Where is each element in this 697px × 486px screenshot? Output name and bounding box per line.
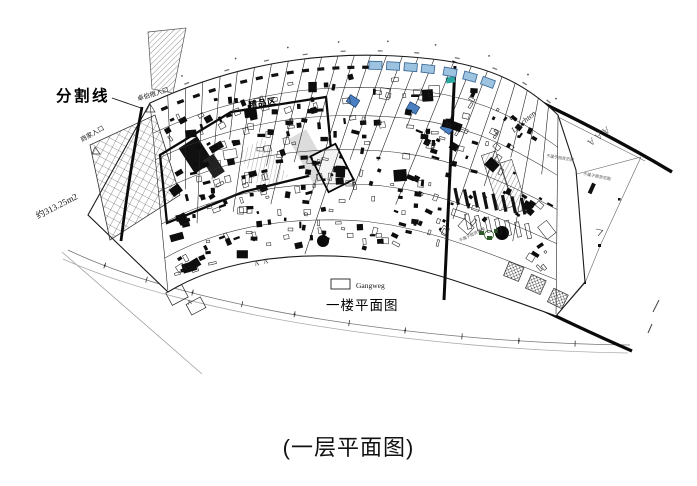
- section-mark: A: [254, 260, 261, 268]
- hatched-ramp: [148, 28, 186, 93]
- gangweg-swatch: [331, 279, 350, 289]
- survey-marks-label: AAA: [583, 124, 612, 149]
- window: [404, 63, 418, 72]
- legend: Gangweg 一楼平面图: [326, 279, 399, 313]
- window: [386, 62, 399, 71]
- annotation-right-mid: 不属于租赁范围: [583, 170, 612, 181]
- window: [421, 64, 435, 73]
- section-mark: A: [186, 298, 193, 306]
- gangweg-label: Gangweg: [356, 281, 385, 290]
- page-caption: (一层平面图): [0, 430, 697, 462]
- area-note-label: 约313.25m2: [34, 190, 79, 220]
- plan-title: 一楼平面图: [326, 298, 399, 313]
- boundary-dashes: [648, 300, 659, 333]
- floor-plan-page: 分割线 卓伯根入口 商家入口 约313.25m2 精品区 Leuchten AA…: [0, 0, 697, 481]
- teal-fixture: [446, 76, 456, 83]
- floor-plan-drawing: 分割线 卓伯根入口 商家入口 约313.25m2 精品区 Leuchten AA…: [0, 0, 697, 481]
- divider-line-label: 分割线: [56, 86, 110, 105]
- window: [369, 61, 382, 69]
